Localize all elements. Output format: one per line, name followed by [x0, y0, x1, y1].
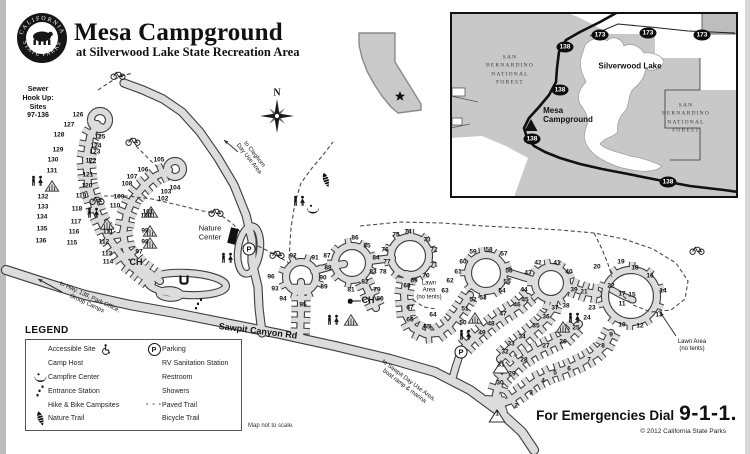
site-number: 78	[379, 269, 386, 276]
site-number: 26	[559, 339, 566, 346]
site-number: 84	[372, 255, 379, 262]
site-number: 6	[567, 366, 571, 373]
campfire-icon	[32, 373, 48, 382]
campground-label: Mesa Campground	[543, 106, 593, 124]
site-number: 21	[580, 289, 587, 296]
site-number: 127	[64, 122, 75, 129]
site-number: 119	[76, 193, 87, 200]
site-number: 38	[562, 303, 569, 310]
legend-item-label: Entrance Station	[48, 388, 100, 395]
site-number: 117	[71, 219, 82, 226]
bike-icon	[269, 249, 285, 260]
site-number: 10	[618, 322, 625, 329]
site-number: 101	[143, 209, 154, 216]
site-number: 88	[324, 265, 331, 272]
site-number: 43	[524, 270, 531, 277]
site-number: 73	[423, 237, 430, 244]
wheelchair-icon	[98, 344, 114, 355]
site-number: 15	[628, 292, 635, 299]
sewer-hookup-note: Sewer Hook Up: Sites 97-136	[11, 86, 65, 121]
legend-left-column: Accessible SiteCamp HostCampfire CenterE…	[32, 343, 119, 426]
site-number: 63	[441, 288, 448, 295]
site-number: 125	[95, 134, 106, 141]
site-number: 85	[363, 243, 370, 250]
site-number: 128	[54, 132, 65, 139]
site-number: 59	[469, 249, 476, 256]
site-number: 90	[319, 275, 326, 282]
bike-icon	[89, 195, 105, 206]
legend-item: Bicycle Trail	[146, 412, 228, 426]
map-label: CH	[130, 257, 143, 267]
legend-item: Campfire Center	[32, 371, 119, 385]
site-number: 2	[514, 403, 518, 410]
site-number: 89	[320, 284, 327, 291]
site-number: 118	[72, 206, 83, 213]
site-number: 27	[542, 343, 549, 350]
tristripe-icon	[344, 314, 359, 326]
site-number: 45	[521, 297, 528, 304]
site-number: 120	[82, 183, 93, 190]
site-number: 102	[158, 196, 169, 203]
tristripe-icon	[45, 180, 60, 192]
site-number: 4	[541, 378, 545, 385]
site-number: 3	[529, 390, 533, 397]
building-icon	[229, 228, 237, 244]
legend-item-label: Bicycle Trail	[162, 415, 199, 422]
site-number: 24	[583, 315, 590, 322]
site-number: 83	[369, 269, 376, 276]
site-number: 132	[38, 194, 49, 201]
site-number: 110	[110, 203, 121, 210]
site-number: 107	[127, 174, 138, 181]
site-number: 41	[553, 260, 560, 267]
sewer-note-line: Hook Up:	[11, 95, 65, 104]
legend-item-label: Nature Trail	[48, 415, 84, 422]
parking-icon: P	[243, 243, 256, 256]
site-number: 67	[406, 305, 413, 312]
map-label: Nature Center	[199, 224, 222, 241]
site-number: 18	[631, 265, 638, 272]
site-number: 22	[607, 283, 614, 290]
legend-item: PParking	[146, 343, 228, 357]
site-number: 112	[99, 239, 110, 246]
site-number: 31	[497, 362, 504, 369]
legend-item-label: Accessible Site	[48, 346, 95, 353]
site-number: 29	[508, 371, 515, 378]
parking-icon: P	[455, 346, 468, 359]
site-number: 48	[487, 321, 494, 328]
site-number: 77	[383, 259, 390, 266]
map-label: Lawn Area (no tents)	[678, 339, 706, 353]
california-map-icon	[352, 30, 428, 118]
site-number: 9	[609, 332, 613, 339]
site-number: 122	[86, 158, 97, 165]
highway-shield: 173	[640, 28, 657, 39]
site-number: 133	[38, 204, 49, 211]
sewer-note-line: Sewer	[11, 86, 65, 95]
site-number: 113	[102, 251, 113, 258]
page-subtitle: at Silverwood Lake State Recreation Area	[76, 45, 299, 60]
site-number: 80	[376, 296, 383, 303]
site-number: 124	[91, 143, 102, 150]
site-number: 40	[565, 269, 572, 276]
site-number: 75	[392, 232, 399, 239]
site-number: 134	[37, 214, 48, 221]
restroom-icon	[292, 196, 307, 207]
highway-shield: 138	[524, 134, 541, 145]
forest-label-left: SAN BERNARDINO NATIONAL FOREST	[486, 54, 534, 87]
site-number: 131	[47, 168, 58, 175]
site-number: 50	[459, 320, 466, 327]
site-number: 92	[289, 253, 296, 260]
legend-item-label: Campfire Center	[48, 374, 99, 381]
page-title: Mesa Campground	[74, 19, 283, 47]
leaf-icon	[32, 411, 48, 426]
site-number: 64	[429, 312, 436, 319]
legend-box: Accessible SiteCamp HostCampfire CenterE…	[25, 339, 242, 431]
site-number: 121	[83, 172, 94, 179]
site-number: 23	[588, 305, 595, 312]
highway-shield: 138	[557, 42, 574, 53]
site-number: 53	[479, 295, 486, 302]
highway-shield: 173	[592, 30, 609, 41]
site-number: 97	[135, 249, 142, 256]
site-number: 17	[618, 291, 625, 298]
site-number: 61	[454, 269, 461, 276]
emergency-text: For Emergencies Dial	[536, 408, 674, 423]
site-number: 12	[636, 323, 643, 330]
site-number: 51	[461, 306, 468, 313]
bike-icon	[125, 136, 141, 147]
legend-item-label: Restroom	[162, 374, 192, 381]
site-number: 56	[505, 268, 512, 275]
site-number: 94	[279, 296, 286, 303]
leaf-icon	[321, 173, 332, 188]
emergency-number: 9-1-1.	[679, 402, 737, 426]
site-number: 81	[347, 287, 354, 294]
sewer-note-line: Sites	[11, 104, 65, 113]
restroom-icon	[220, 253, 235, 264]
legend-item-label: RV Sanitation Station	[162, 360, 228, 367]
dot-icon	[348, 299, 353, 304]
site-number: 72	[430, 247, 437, 254]
site-number: 66	[406, 317, 413, 324]
site-number: 71	[430, 262, 437, 269]
legend-item-label: Hike & Bike Campsites	[48, 402, 119, 409]
legend-item: - - -Paved Trail	[146, 398, 228, 412]
site-number: 109	[114, 194, 125, 201]
site-number: 30	[496, 380, 503, 387]
site-number: 130	[48, 157, 59, 164]
sewer-note-line: 97-136	[11, 112, 65, 121]
site-number: 104	[170, 185, 181, 192]
site-number: 87	[323, 253, 330, 260]
bike-icon	[110, 70, 126, 81]
site-number: 14	[659, 288, 666, 295]
legend-title: LEGEND	[25, 325, 68, 336]
legend-item: RV Sanitation Station	[146, 357, 228, 371]
site-number: 47	[499, 311, 506, 318]
legend-right-column: PParkingRV Sanitation StationRestroomSho…	[146, 343, 228, 426]
site-number: 57	[500, 251, 507, 258]
site-number: 106	[138, 167, 149, 174]
site-number: 20	[593, 264, 600, 271]
restroom-icon	[326, 315, 341, 326]
site-number: 19	[617, 259, 624, 266]
campfire-icon	[307, 205, 320, 214]
legend-item-label: Camp Host	[48, 360, 83, 367]
compass-icon	[259, 98, 295, 134]
legend-item: Showers	[146, 384, 228, 398]
site-number: 16	[646, 273, 653, 280]
site-number: 111	[103, 229, 113, 236]
site-number: 28	[520, 357, 527, 364]
site-number: 82	[361, 279, 368, 286]
compass-north-label: N	[273, 88, 280, 99]
site-number: 60	[459, 259, 466, 266]
site-number: 123	[90, 149, 101, 156]
legend-item: Entrance Station	[32, 384, 119, 398]
emergency-notice: For Emergencies Dial 9-1-1.	[536, 402, 737, 426]
site-number: 105	[154, 157, 165, 164]
site-number: 1	[495, 411, 499, 418]
site-number: 35	[532, 323, 539, 330]
site-number: 46	[513, 302, 520, 309]
map-scale-note: Map not to scale.	[248, 423, 294, 429]
site-number: 126	[73, 112, 84, 119]
restroom-icon	[458, 330, 473, 341]
california-state-parks-logo: CALIFORNIA STATE PARKS	[16, 12, 68, 64]
site-number: 44	[520, 287, 527, 294]
site-number: 39	[570, 287, 577, 294]
legend-item: Accessible Site	[32, 343, 119, 357]
bike-icon	[689, 245, 705, 256]
site-number: 49	[478, 330, 485, 337]
site-number: 32	[501, 349, 508, 356]
tristripe-icon	[556, 321, 571, 333]
parking-icon: P	[146, 343, 162, 356]
site-number: 99	[141, 228, 148, 235]
site-number: 91	[311, 255, 318, 262]
legend-item: Nature Trail	[32, 412, 119, 426]
site-number: 52	[469, 297, 476, 304]
site-number: 135	[37, 226, 48, 233]
legend-item-label: Showers	[162, 388, 189, 395]
site-number: 96	[267, 274, 274, 281]
silverwood-lake-shape	[578, 38, 664, 171]
map-label: CH	[362, 295, 375, 305]
tristripe-icon	[468, 312, 483, 324]
area-inset-map: SAN BERNARDINO NATIONAL FOREST SAN BERNA…	[450, 12, 738, 198]
site-number: 11	[619, 301, 626, 308]
site-number: 33	[507, 341, 514, 348]
site-number: 5	[553, 370, 557, 377]
bike-icon	[208, 207, 224, 218]
site-number: 62	[446, 278, 453, 285]
site-number: 55	[503, 279, 510, 286]
site-number: 54	[498, 288, 505, 295]
legend-item: Camp Host	[32, 357, 119, 371]
restroom-icon	[86, 208, 101, 219]
copyright-notice: © 2012 California State Parks	[640, 428, 726, 435]
site-number: 74	[404, 229, 411, 236]
site-number: 108	[122, 181, 133, 188]
rv-icon	[179, 275, 190, 285]
site-number: 86	[351, 235, 358, 242]
site-number: 13	[655, 312, 662, 319]
site-number: 36	[542, 314, 549, 321]
site-number: 114	[103, 259, 114, 266]
site-number: 98	[141, 239, 148, 246]
legend-item-label: Parking	[162, 346, 186, 353]
site-number: 95	[299, 302, 306, 309]
site-number: 34	[518, 334, 525, 341]
highway-shield: 138	[660, 177, 677, 188]
site-number: 65	[423, 324, 430, 331]
site-number: 58	[485, 247, 492, 254]
site-number: 136	[36, 238, 47, 245]
site-number: 8	[601, 343, 605, 350]
site-number: 93	[271, 286, 278, 293]
campground-map-page: CALIFORNIA STATE PARKS Mesa Campground a…	[0, 0, 750, 454]
highway-shield: 138	[552, 85, 569, 96]
entr-icon	[32, 385, 48, 397]
site-number: 42	[534, 260, 541, 267]
lake-label: Silverwood Lake	[598, 62, 661, 71]
legend-item: Hike & Bike Campsites	[32, 398, 119, 412]
highway-shield: 173	[694, 30, 711, 41]
site-number: 79	[373, 287, 380, 294]
forest-label-right: SAN BERNARDINO NATIONAL FOREST	[662, 102, 710, 135]
site-number: 37	[551, 305, 558, 312]
legend-item: Restroom	[146, 371, 228, 385]
legend-item-label: Paved Trail	[162, 402, 197, 409]
site-number: 115	[67, 240, 78, 247]
restroom-icon	[30, 176, 45, 187]
site-number: 116	[69, 229, 80, 236]
site-number: 76	[381, 247, 388, 254]
site-number: 7	[587, 357, 591, 364]
entr-icon	[195, 298, 204, 310]
site-number: 70	[422, 273, 429, 280]
map-label: Lawn Area (no tents)	[416, 281, 441, 302]
site-number: 129	[53, 147, 64, 154]
site-number: 25	[572, 325, 579, 332]
